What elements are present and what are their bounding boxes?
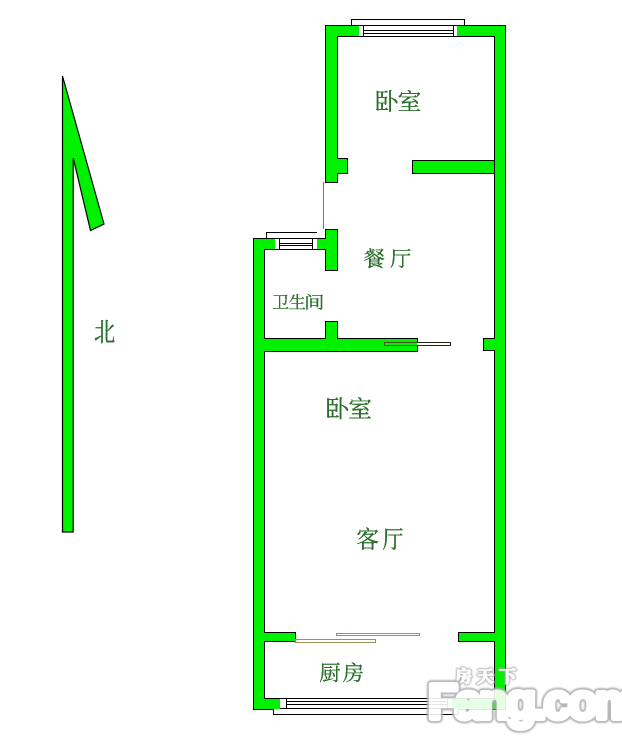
svg-text:Fang.com: Fang.com	[428, 676, 622, 730]
